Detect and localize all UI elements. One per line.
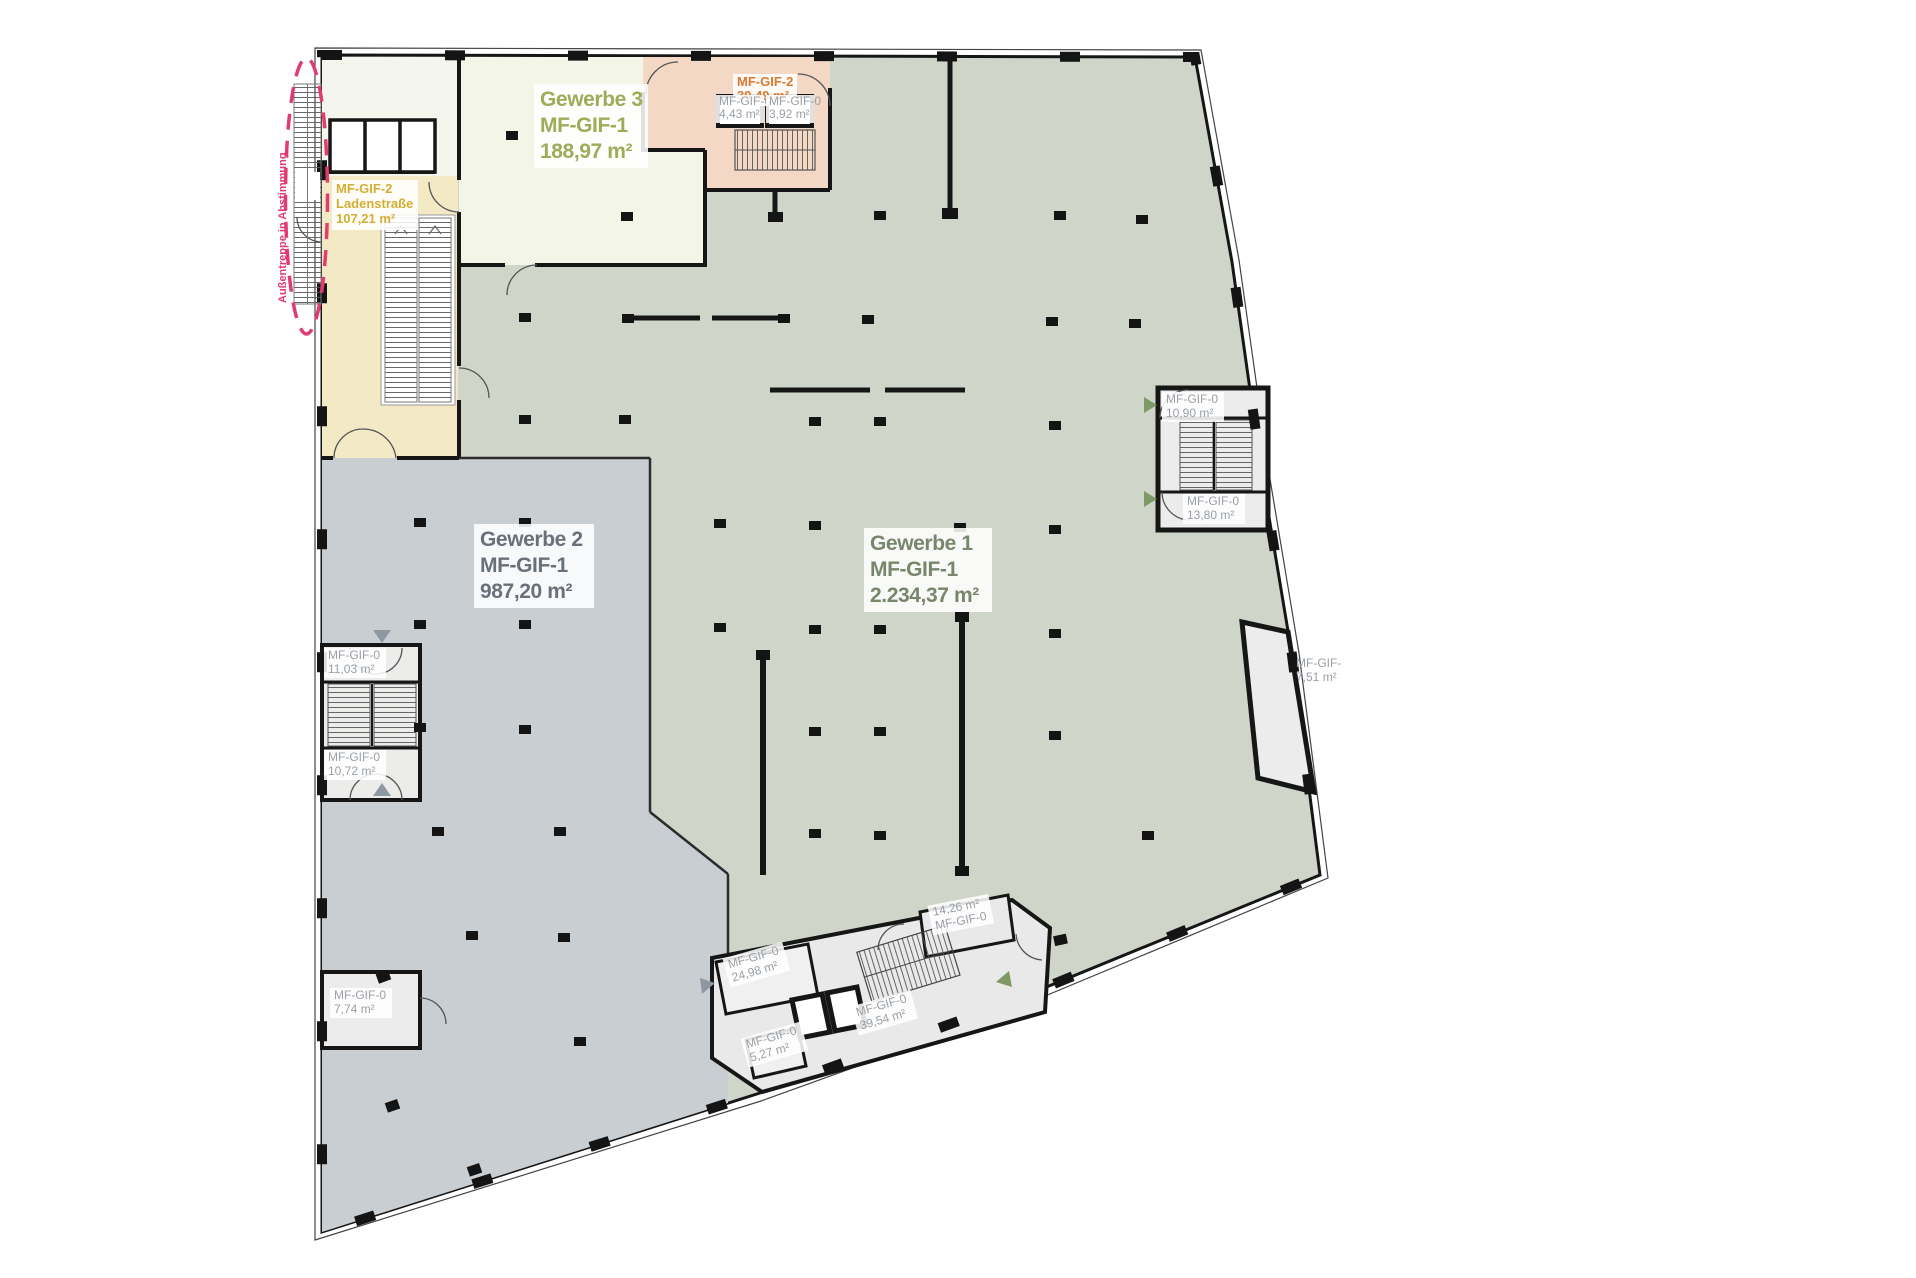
label-r1103: MF-GIF-011,03 m²: [328, 648, 380, 676]
exterior-stair: Außentreppe in Abstimmung: [277, 58, 328, 334]
label-r1072: MF-GIF-010,72 m²: [328, 750, 380, 778]
annotation-aussentreppe: Außentreppe in Abstimmung: [277, 152, 289, 303]
label-r1380: MF-GIF-013,80 m²: [1187, 494, 1239, 522]
wc-stalls: [330, 120, 435, 172]
floor-plan: Außentreppe in Abstimmung Gewerbe 3 MF-G…: [0, 0, 1916, 1278]
floor-plan-canvas: Außentreppe in Abstimmung Gewerbe 3 MF-G…: [0, 0, 1916, 1278]
label-r1090: MF-GIF-010,90 m²: [1166, 392, 1218, 420]
label-gewerbe1: Gewerbe 1 MF-GIF-1 2.234,37 m²: [870, 532, 979, 607]
label-gewerbe2: Gewerbe 2 MF-GIF-1 987,20 m²: [480, 528, 588, 603]
escalator: [381, 215, 455, 405]
label-r751: MF-GIF-7,51 m²: [1296, 656, 1341, 684]
label-gewerbe3: Gewerbe 3 MF-GIF-1 188,97 m²: [540, 88, 648, 163]
